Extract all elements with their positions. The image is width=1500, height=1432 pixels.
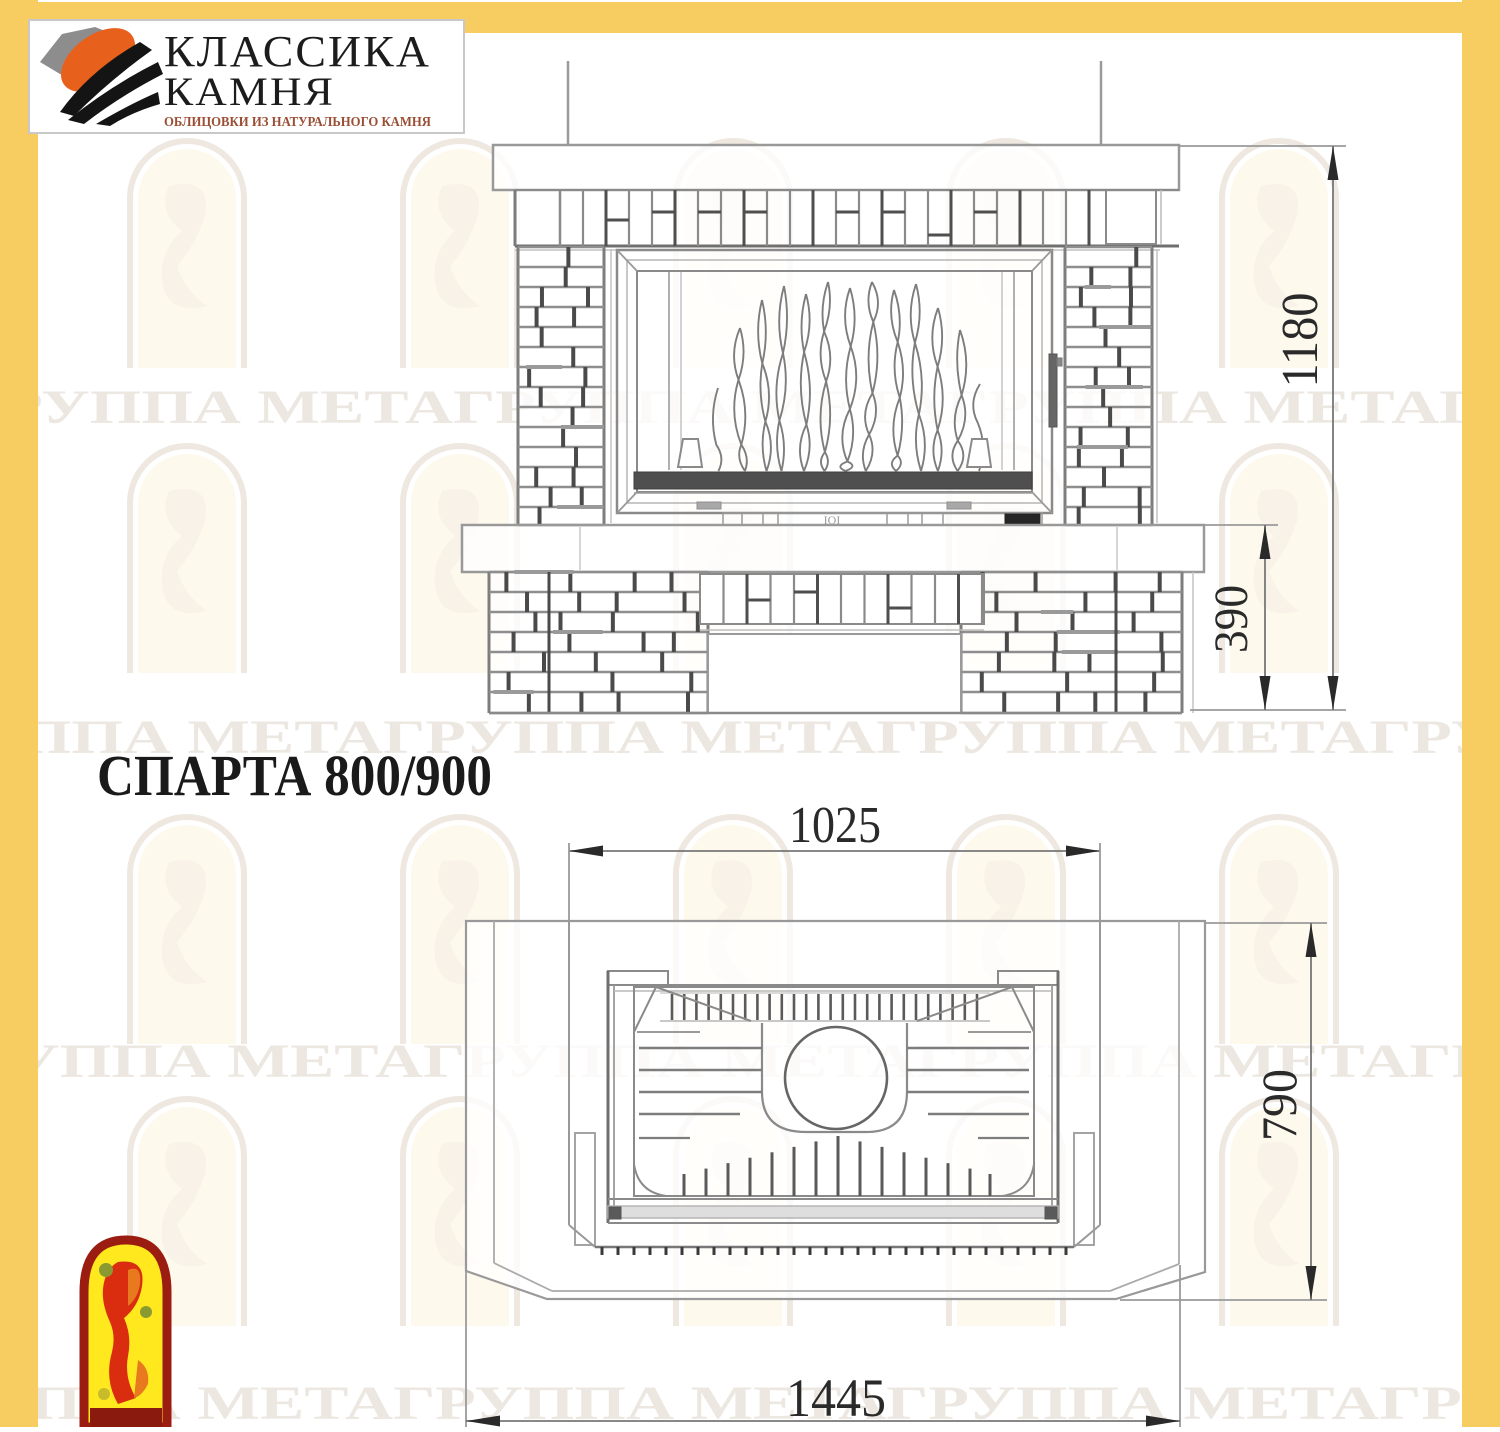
svg-text:1445: 1445 bbox=[786, 1368, 886, 1427]
svg-text:790: 790 bbox=[1251, 1069, 1307, 1141]
svg-text:ГРУППА МЕТАГРУППА МЕТАГРУППА М: ГРУППА МЕТАГРУППА МЕТАГРУППА МЕТАГРУППА bbox=[0, 1377, 1500, 1427]
svg-text:1180: 1180 bbox=[1272, 293, 1329, 388]
svg-text:ОБЛИЦОВКИ ИЗ НАТУРАЛЬНОГО КАМН: ОБЛИЦОВКИ ИЗ НАТУРАЛЬНОГО КАМНЯ bbox=[164, 115, 431, 130]
svg-text:СПАРТА 800/900: СПАРТА 800/900 bbox=[97, 743, 492, 808]
svg-text:КАМНЯ: КАМНЯ bbox=[164, 69, 335, 114]
svg-text:1025: 1025 bbox=[789, 797, 881, 854]
svg-text:390: 390 bbox=[1205, 585, 1258, 653]
